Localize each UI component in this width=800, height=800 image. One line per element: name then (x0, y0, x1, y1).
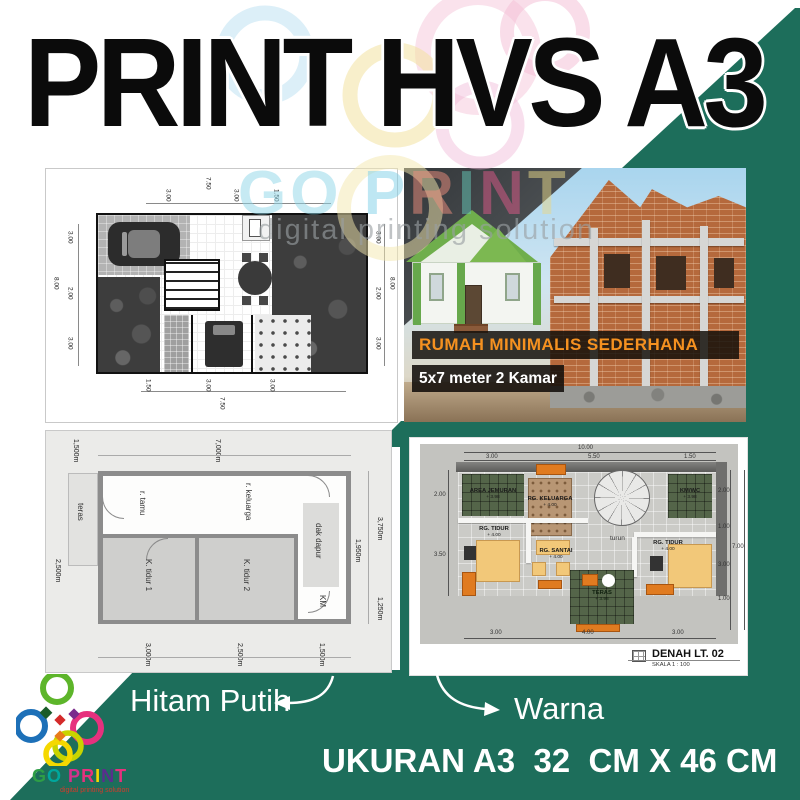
pillow (213, 325, 235, 335)
room-label-keluarga: r. keluarga (244, 483, 252, 520)
dim-label: 3.00 (490, 630, 502, 636)
staircase (164, 259, 220, 311)
room-elev: + 3.98 (574, 597, 630, 603)
dim-label: 3.00 (718, 562, 730, 568)
dim-label: 7,000m (214, 439, 221, 462)
room-label-dapur: dak dapur (314, 523, 322, 559)
dim-label: 1,500m (318, 643, 325, 666)
diamond-red (54, 714, 65, 725)
dim-line (730, 470, 731, 630)
dim-line-bottom (141, 391, 346, 392)
room-label-km: KM (318, 595, 326, 607)
dim-label: 3.00 (204, 379, 211, 392)
room-elev: + 3.98 (668, 495, 712, 501)
room-elev: + 4.00 (638, 547, 698, 553)
subline-text: 5x7 meter 2 Kamar (412, 370, 557, 388)
dim-label: 1.00 (718, 524, 730, 530)
window (505, 273, 520, 301)
dim-label: 2,500m (54, 559, 61, 582)
dim-label: 3.00 (374, 337, 381, 350)
room-label-keluarga: RG. KELUARGA + 4.00 (508, 496, 592, 509)
dining-table (238, 261, 272, 295)
roof-gable-2 (468, 228, 528, 264)
logo-letter: N (101, 766, 115, 786)
window-opening (604, 254, 630, 288)
dim-line (464, 638, 716, 639)
room-name: RG. TIDUR (479, 526, 509, 532)
wall-horizontal (458, 518, 588, 523)
logo-wordmark: GO PRINT (32, 766, 127, 787)
headline-band: RUMAH MINIMALIS SEDERHANA (412, 331, 739, 359)
dim-label: 1.00 (718, 596, 730, 602)
car-windshield (122, 232, 127, 256)
room-name: RG. TIDUR (653, 540, 683, 546)
desk-left (464, 546, 476, 560)
footer-rule (628, 660, 740, 661)
plan-background: AREA JEMURAN + 3.98 RG. KELUARGA + 4.00 … (420, 444, 738, 644)
pillar (457, 263, 465, 325)
stair-label: turun (610, 536, 625, 543)
dim-label: 3.00 (268, 379, 275, 392)
dim-line-left (78, 224, 79, 366)
dim-label: 1.50 (144, 379, 151, 392)
size-label: UKURAN A3 32 CM X 46 CM (322, 742, 777, 780)
panel-color-floorplan: AREA JEMURAN + 3.98 RG. KELUARGA + 4.00 … (409, 437, 748, 676)
dim-label: 10.00 (578, 445, 593, 451)
sofa-chair (556, 562, 570, 576)
teras-chair (582, 574, 598, 586)
flyer-canvas: PRINT HVS A3 GO PRINT digital printing s… (0, 0, 800, 800)
logo-letter: P (68, 766, 81, 786)
dim-label: 2.00 (374, 287, 381, 300)
room-label-teras: TERAS + 3.98 (574, 590, 630, 603)
dim-label: 3.00 (232, 189, 239, 202)
ring-green (43, 674, 71, 702)
dim-line (464, 452, 716, 453)
dim-label: 1.50 (272, 189, 279, 202)
chair (259, 296, 268, 305)
concrete-pillar (590, 228, 598, 388)
logo-letter: T (115, 766, 127, 786)
window-opening (656, 256, 686, 290)
room-name: KM/WC (680, 488, 700, 494)
carpet-room (255, 315, 311, 372)
inner-wall (294, 538, 298, 620)
dim-label: 3.00 (672, 630, 684, 636)
chair (242, 296, 251, 305)
room-name: AREA JEMURAN (470, 488, 517, 494)
dim-label: 1,500m (72, 439, 79, 462)
room-name: TERAS (592, 590, 612, 596)
dim-line (744, 470, 745, 630)
plan-title: DENAH LT. 02 (652, 648, 724, 660)
chair (259, 253, 268, 262)
dim-line-top (146, 203, 331, 204)
dim-label: 3.00 (164, 189, 171, 202)
dim-label: 2.00 (66, 287, 73, 300)
dim-line (464, 460, 716, 461)
dim-label: 8.00 (388, 277, 395, 290)
wall-horizontal (634, 532, 716, 537)
room-label-tidur1: K. tidur 1 (144, 559, 152, 591)
dresser-right (646, 584, 674, 595)
pillar (533, 263, 541, 325)
bedroom (191, 315, 253, 372)
bed-left (476, 540, 520, 582)
bathroom (164, 315, 189, 372)
dim-line (98, 455, 351, 456)
dim-label: 3.00 (66, 231, 73, 244)
teras-table (602, 574, 615, 587)
plan-scale: SKALA 1 : 100 (652, 662, 690, 668)
wardrobe-left (462, 572, 476, 596)
goprint-logo: GO PRINT digital printing solution (16, 674, 186, 800)
room-label-santai: RG. SANTAI + 4.00 (526, 548, 586, 561)
panel-house-render: RUMAH MINIMALIS SEDERHANA 5x7 meter 2 Ka… (404, 168, 746, 422)
dim-label: 1,950m (354, 539, 361, 562)
logo-rings (16, 674, 146, 766)
concrete-pillar (700, 226, 708, 388)
panel-bw-floorplan-1: 3.00 7.50 3.00 1.50 3.00 2.00 8.00 3.00 … (45, 168, 398, 423)
sofa-chair (532, 562, 546, 576)
desk-right (650, 556, 663, 571)
logo-letter: O (47, 766, 62, 786)
stove-icon (249, 219, 261, 237)
front-door (465, 285, 482, 325)
bed (205, 321, 243, 367)
cabinet (536, 464, 566, 475)
room-elev: + 4.00 (526, 555, 586, 561)
room-elev: + 4.00 (464, 533, 524, 539)
headline-text: RUMAH MINIMALIS SEDERHANA (412, 335, 698, 355)
garden-left (98, 277, 160, 372)
panel-bw-floorplan-2: teras r. tamu r. keluarga K. tidur 1 K. … (45, 430, 392, 673)
room-label-kmwc: KM/WC + 3.98 (668, 488, 712, 501)
dim-label: 1.50 (684, 454, 696, 460)
logo-letter: R (81, 766, 95, 786)
green-house (406, 168, 551, 338)
dim-label: 3.00 (374, 231, 381, 244)
spiral-staircase (594, 470, 650, 526)
dim-label: 8.00 (52, 277, 59, 290)
window (429, 273, 444, 301)
dim-label: 2.00 (718, 488, 730, 494)
dim-label: 3,000m (144, 643, 151, 666)
dim-line (98, 657, 351, 658)
dim-label: 5.50 (588, 454, 600, 460)
dim-label: 1,250m (376, 597, 383, 620)
dim-label: 3.00 (486, 454, 498, 460)
wall-top (456, 462, 724, 472)
logo-tagline: digital printing solution (60, 787, 129, 794)
chair (242, 253, 251, 262)
room-name: RG. KELUARGA (528, 496, 573, 502)
room-label-tidur2: K. tidur 2 (242, 559, 250, 591)
window-opening (714, 258, 734, 288)
room-label-teras: teras (76, 503, 84, 521)
concrete-pillar (642, 220, 650, 388)
logo-letter: G (32, 766, 47, 786)
dim-line (368, 471, 369, 624)
room-label-tidur-right: RG. TIDUR + 4.00 (638, 540, 698, 553)
stone-foundation (550, 386, 746, 408)
room-label-tamu: r. tamu (138, 491, 146, 515)
car-roof (128, 230, 160, 258)
dim-label: 2.00 (434, 492, 446, 498)
dim-label: 3.00 (66, 337, 73, 350)
room-elev: + 4.00 (508, 503, 592, 509)
dim-label: 3,750m (376, 517, 383, 540)
page-title: PRINT HVS A3 (24, 20, 797, 146)
dim-label: 7.00 (732, 544, 744, 550)
ring-blue (17, 712, 45, 740)
pillar (413, 263, 421, 325)
kitchen-counter (242, 215, 270, 241)
dim-label: 3.50 (434, 552, 446, 558)
room-label-tidur-left: RG. TIDUR + 4.00 (464, 526, 524, 539)
dim-line (448, 470, 449, 596)
dim-label: 7.50 (218, 397, 225, 410)
dim-label: 4.00 (582, 630, 594, 636)
coffee-table (538, 580, 562, 589)
dim-line-right (384, 224, 385, 366)
label-warna: Warna (514, 691, 604, 727)
room-name: RG. SANTAI (539, 548, 572, 554)
dim-label: 7.50 (204, 177, 211, 190)
subline-band: 5x7 meter 2 Kamar (412, 365, 564, 392)
house-facade (412, 262, 540, 324)
dim-label: 2,500m (236, 643, 243, 666)
